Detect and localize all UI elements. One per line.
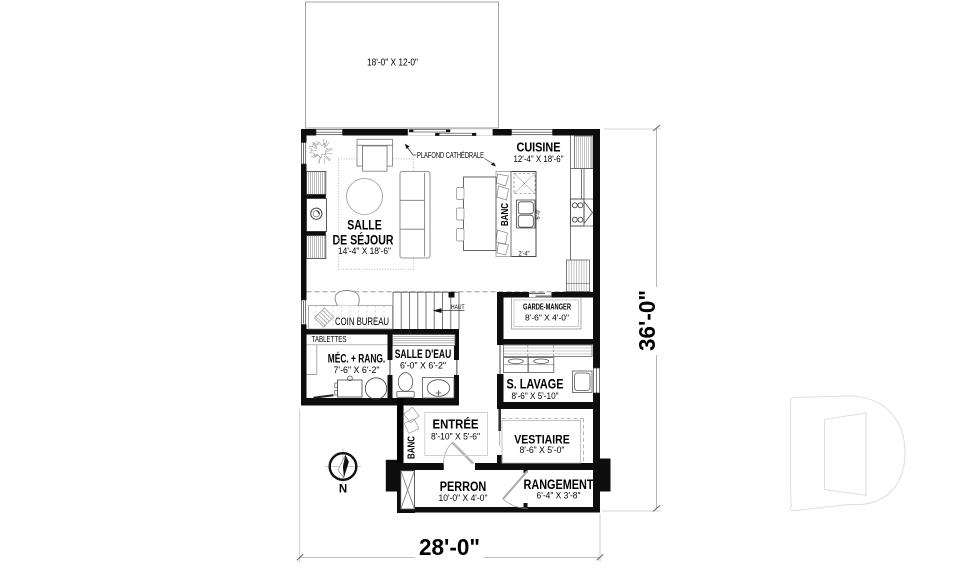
svg-text:COIN BUREAU: COIN BUREAU bbox=[335, 316, 389, 328]
svg-text:8'-6" X 4'-0": 8'-6" X 4'-0" bbox=[525, 313, 569, 323]
svg-text:6'-0": 6'-0" bbox=[536, 208, 542, 219]
svg-text:2'-4": 2'-4" bbox=[519, 251, 531, 258]
svg-text:MÉC. + RANG.: MÉC. + RANG. bbox=[328, 351, 386, 366]
svg-text:7'-6" X 6'-2": 7'-6" X 6'-2" bbox=[334, 365, 380, 376]
svg-text:N: N bbox=[339, 484, 347, 496]
svg-text:S. LAVAGE: S. LAVAGE bbox=[507, 377, 564, 392]
svg-text:TABLETTES: TABLETTES bbox=[312, 334, 347, 344]
svg-text:14'-4" X 18'-6": 14'-4" X 18'-6" bbox=[338, 246, 391, 257]
svg-text:SALLE: SALLE bbox=[347, 218, 382, 233]
svg-text:6'-0" X 6'-2": 6'-0" X 6'-2" bbox=[400, 361, 446, 372]
svg-text:8'-6" X 5'-0": 8'-6" X 5'-0" bbox=[520, 445, 565, 455]
svg-text:8'-6" X 5'-10": 8'-6" X 5'-10" bbox=[512, 391, 559, 402]
svg-text:PLAFOND CATHÉDRALE: PLAFOND CATHÉDRALE bbox=[417, 150, 484, 160]
svg-text:12'-4" X 18'-6": 12'-4" X 18'-6" bbox=[514, 154, 564, 165]
svg-text:8'-10" X 5'-6": 8'-10" X 5'-6" bbox=[431, 432, 480, 443]
svg-text:10'-0" X 4'-0": 10'-0" X 4'-0" bbox=[439, 493, 488, 504]
svg-text:SALLE D'EAU: SALLE D'EAU bbox=[395, 347, 452, 361]
svg-text:36'-0": 36'-0" bbox=[634, 290, 660, 351]
svg-text:ENTRÉE: ENTRÉE bbox=[433, 417, 479, 432]
svg-text:18'-0" X 12-0": 18'-0" X 12-0" bbox=[367, 58, 418, 69]
svg-text:BANC: BANC bbox=[499, 203, 511, 226]
svg-text:6'-4" X 3'-8": 6'-4" X 3'-8" bbox=[537, 491, 581, 502]
svg-text:BANC: BANC bbox=[406, 436, 418, 459]
svg-text:HAUT: HAUT bbox=[451, 305, 465, 311]
svg-text:28'-0": 28'-0" bbox=[419, 534, 480, 560]
svg-text:CUISINE: CUISINE bbox=[517, 141, 561, 155]
svg-text:PERRON: PERRON bbox=[440, 479, 487, 494]
svg-text:GARDE-MANGER: GARDE-MANGER bbox=[523, 302, 571, 312]
